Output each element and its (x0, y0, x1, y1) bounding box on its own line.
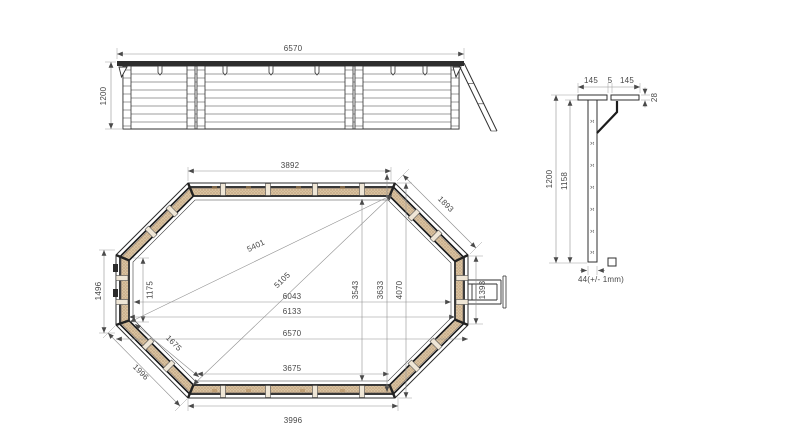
dim-plan-mid-length: 6133 (283, 307, 302, 316)
dim-plan-diagonal-long: 5401 (246, 237, 267, 253)
dim-plan-inner-width: 3543 (351, 280, 360, 299)
dim-plan-left-edge: 1496 (94, 281, 103, 300)
section-view: 145 5 145 28 1200 1158 44(+/- 1mm) (545, 76, 659, 284)
dim-section-coping-right: 145 (620, 76, 634, 85)
dim-plan-bottom-left-edge: 1996 (131, 362, 151, 382)
dim-plan-right-edge: 1393 (478, 280, 487, 299)
elevation-view: 6570 1200 (99, 44, 497, 131)
pool-top-rail (117, 61, 464, 66)
dim-plan-bottom-edge: 3996 (284, 416, 303, 425)
drawing-canvas: 6570 1200 (0, 0, 794, 446)
dim-plan-inner-length: 6043 (283, 292, 302, 301)
wall-plank-column (588, 100, 597, 262)
dim-section-wall-height: 1158 (560, 172, 569, 190)
base-block (608, 258, 616, 266)
dim-plan-mid-width: 3633 (376, 280, 385, 299)
dim-plan-left-inner-edge: 1175 (146, 281, 155, 299)
dim-plan-top-edge: 3892 (281, 161, 300, 170)
coping-brace (597, 101, 617, 133)
dim-section-coping-thickness: 28 (650, 93, 659, 103)
dim-plan-outer-width: 4070 (395, 280, 404, 299)
dim-section-total-height: 1200 (545, 169, 554, 188)
technical-drawing: 6570 1200 (0, 0, 794, 446)
plan-view: 3892 1893 1496 1996 3996 1175 1675 5401 … (94, 161, 506, 425)
dim-elevation-height: 1200 (99, 86, 108, 105)
dim-section-coping-gap: 5 (608, 76, 613, 85)
ladder (458, 63, 497, 131)
coping-board-left (578, 95, 607, 100)
plan-dimension-lines (99, 167, 483, 411)
dim-plan-outer-length: 6570 (283, 329, 302, 338)
skimmer-box (468, 276, 506, 308)
dim-elevation-length: 6570 (284, 44, 303, 53)
dim-plan-diagonal-short: 5105 (272, 270, 292, 290)
coping-board-right (611, 95, 639, 100)
pool-wall-elevation (123, 66, 459, 129)
dim-section-plank-thickness: 44(+/- 1mm) (578, 275, 624, 284)
dim-plan-bottom-inner-edge: 3675 (283, 364, 302, 373)
dim-section-coping-left: 145 (584, 76, 598, 85)
